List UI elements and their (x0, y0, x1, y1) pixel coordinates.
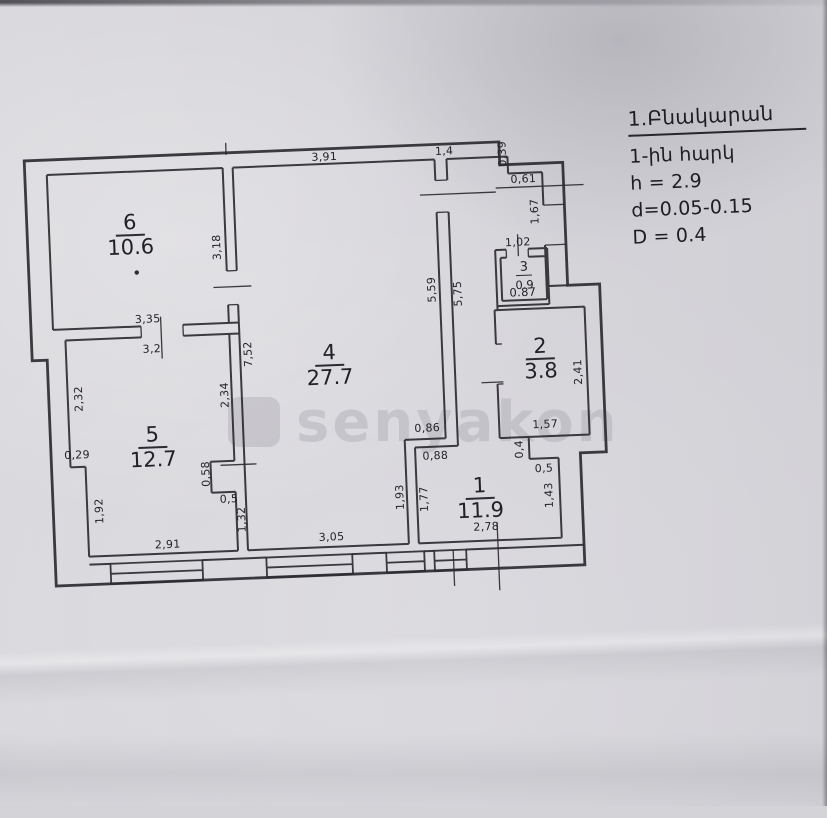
dim-room1-step-width: 0,5 (534, 461, 553, 475)
room6-dot (134, 270, 139, 275)
dim-room2-width: 1,57 (532, 417, 558, 431)
dim-room1-ne: 1,43 (542, 482, 556, 508)
room-3-number: 3 (515, 260, 532, 275)
dim-top-entry: 1,4 (435, 144, 454, 158)
dim-room5-sw: 1,92 (92, 498, 106, 524)
dim-room5-ne: 2,34 (218, 382, 232, 408)
dim-room5-notch-height: 0,58 (199, 461, 213, 487)
dim-room1-jog-south: 0,88 (422, 449, 448, 463)
dim-room4-west: 7,52 (241, 341, 255, 367)
dim-room5-width-top: 3,2 (142, 342, 161, 356)
dim-room4-se: 1,93 (393, 484, 407, 510)
room-2-area: 3.8 (524, 356, 558, 383)
dim-room5-width-bottom: 2,91 (155, 537, 181, 551)
dim-room4-east-2: 5,75 (451, 281, 465, 307)
dim-entry-height: 1,67 (528, 198, 542, 224)
dim-room5-se: 1,32 (235, 506, 249, 532)
dim-room6-width: 3,35 (135, 312, 161, 326)
dim-room1-width-bottom: 2,78 (473, 520, 499, 534)
photo-top-edge (0, 0, 827, 7)
dim-entry-width: 0,61 (510, 172, 536, 186)
dim-room1-nw: 1,77 (417, 486, 431, 512)
room-5-area: 12.7 (129, 445, 177, 473)
dim-room4-east-1: 5,59 (425, 277, 439, 303)
legend: 1.Բնակարան 1-ին հարկ h = 2.9 d=0.05-0.15… (627, 99, 823, 249)
door-openings (136, 175, 572, 398)
dim-room4-width-bottom: 3,05 (318, 530, 344, 544)
dim-room5-notch-width: 0,5 (219, 492, 238, 506)
room-2-label: 2 3.8 (523, 334, 558, 382)
dim-room6-height: 3,18 (210, 234, 224, 260)
legend-ceiling-height: h = 2.9 (630, 165, 821, 195)
room-4-label: 4 27.7 (305, 340, 354, 389)
legend-partition-thickness: d=0.05-0.15 (631, 192, 822, 222)
window-symbols (110, 550, 467, 584)
dim-room1-step-east: 0,4 (512, 440, 526, 459)
room-4-area: 27.7 (306, 362, 354, 390)
room-1-label: 1 11.9 (456, 473, 505, 522)
dim-room2-height: 2,41 (571, 359, 585, 385)
dim-room1-jog-north: 0,86 (414, 421, 440, 435)
photo-right-edge (822, 0, 827, 806)
room-6-area: 10.6 (107, 232, 155, 260)
dim-entry-step: 0,39 (495, 141, 509, 167)
dim-room5-step: 0,29 (64, 448, 90, 462)
legend-floor: 1-ին հարկ (629, 138, 820, 168)
room-3-width-label: 0.87 (509, 285, 536, 300)
dim-room5-nw: 2,32 (72, 386, 86, 412)
dim-top-room4: 3,91 (311, 150, 337, 164)
dim-room3-width: 1,02 (505, 235, 531, 249)
room-5-label: 5 12.7 (128, 423, 177, 472)
room-6-label: 6 10.6 (106, 210, 155, 259)
